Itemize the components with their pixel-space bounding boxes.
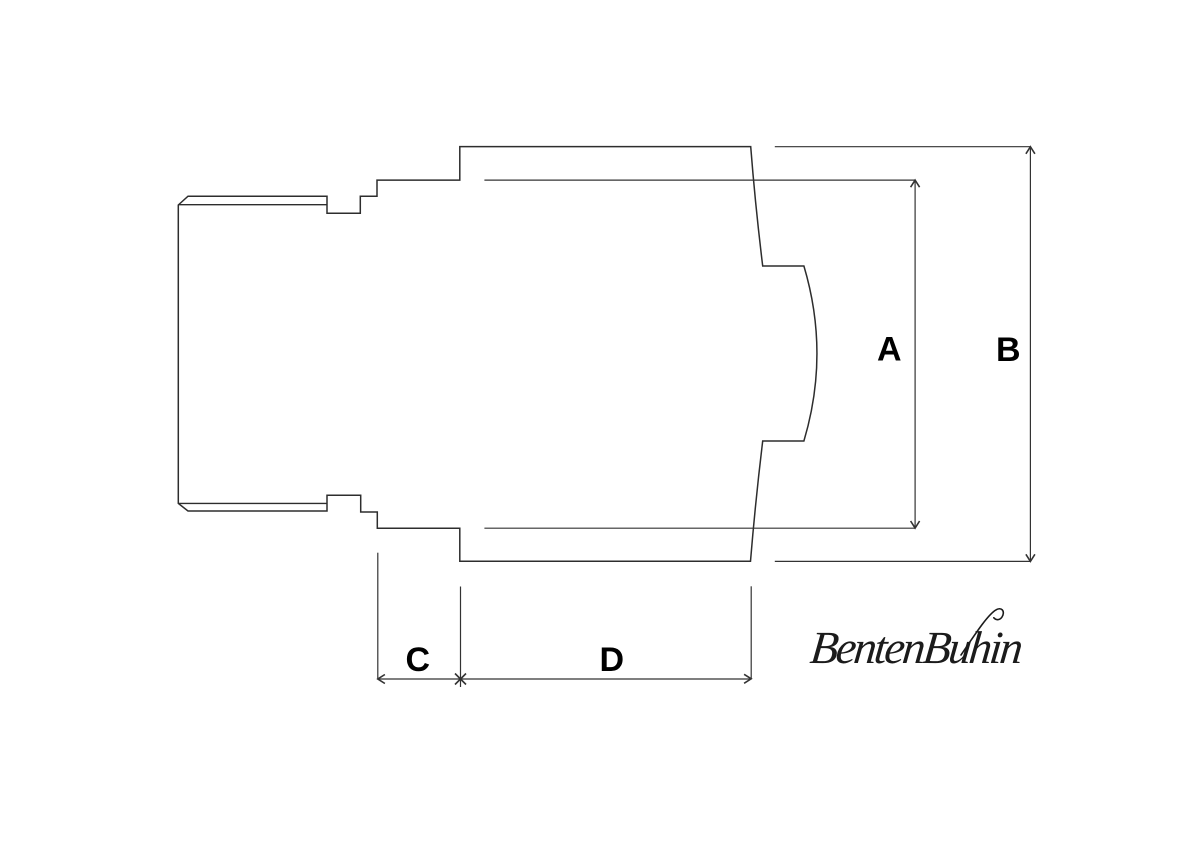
svg-text:C: C (406, 641, 431, 679)
svg-text:B: B (996, 331, 1021, 369)
svg-text:BentenBuhin: BentenBuhin (808, 622, 1025, 673)
svg-text:D: D (600, 641, 625, 679)
svg-text:A: A (877, 331, 902, 369)
